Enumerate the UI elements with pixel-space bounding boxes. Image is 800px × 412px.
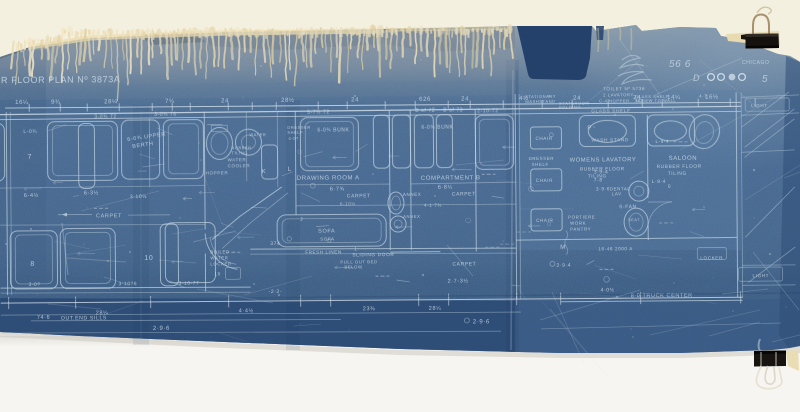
svg-text:M: M <box>560 245 566 251</box>
svg-text:2·9·6: 2·9·6 <box>473 319 490 325</box>
svg-text:PORTIERE: PORTIERE <box>568 214 595 219</box>
svg-text:374: 374 <box>270 241 280 247</box>
svg-text:24: 24 <box>461 96 469 102</box>
svg-text:LIGHT: LIGHT <box>753 273 770 278</box>
svg-text:COMPARTMENT B: COMPARTMENT B <box>421 175 481 181</box>
svg-text:WATER: WATER <box>228 157 247 162</box>
svg-text:SEAT: SEAT <box>628 218 640 222</box>
svg-text:-2·2-: -2·2- <box>269 289 283 295</box>
svg-text:24: 24 <box>351 97 359 103</box>
svg-text:2·9·6: 2·9·6 <box>153 326 170 332</box>
svg-text:16·46 2000 A: 16·46 2000 A <box>598 246 633 251</box>
svg-text:19: 19 <box>214 271 220 276</box>
svg-text:6-3½: 6-3½ <box>84 189 99 196</box>
svg-text:GLASS SHELF: GLASS SHELF <box>591 108 630 114</box>
svg-text:FOLDING: FOLDING <box>559 105 581 110</box>
svg-text:CHAIR: CHAIR <box>536 218 553 223</box>
svg-text:CARPET: CARPET <box>347 193 371 199</box>
svg-text:L: L <box>288 167 292 173</box>
svg-text:3-0?: 3-0? <box>29 282 41 288</box>
svg-text:SHELF: SHELF <box>287 130 303 135</box>
svg-text:P: P <box>587 125 592 131</box>
svg-text:3·9-4: 3·9-4 <box>594 169 609 175</box>
svg-text:K: K <box>262 169 267 175</box>
svg-text:HOPPER: HOPPER <box>206 170 229 175</box>
svg-text:CHAIR: CHAIR <box>536 178 553 183</box>
svg-text:2·7-3½: 2·7-3½ <box>448 277 469 284</box>
svg-text:CHICAGO: CHICAGO <box>742 60 770 66</box>
svg-text:J: J <box>300 217 303 223</box>
svg-text:5: 5 <box>762 74 768 85</box>
svg-text:4-0?: 4-0? <box>288 136 299 141</box>
svg-text:WOMENS LAVATORY: WOMENS LAVATORY <box>570 157 637 164</box>
svg-text:WORK: WORK <box>570 221 586 226</box>
svg-text:L-0¾: L-0¾ <box>23 129 37 135</box>
svg-text:23⅜: 23⅜ <box>363 306 376 312</box>
svg-text:CARPET: CARPET <box>452 261 476 267</box>
svg-text:WATER: WATER <box>249 132 266 137</box>
svg-text:WATER: WATER <box>210 255 228 260</box>
svg-text:2 LAVATORY: 2 LAVATORY <box>603 92 634 97</box>
svg-text:DRAWING ROOM A: DRAWING ROOM A <box>297 175 360 181</box>
svg-text:626: 626 <box>419 97 431 103</box>
svg-text:S-FAN: S-FAN <box>619 204 637 210</box>
svg-text:SCREW TO WALL: SCREW TO WALL <box>635 98 676 103</box>
svg-text:3·9·6: 3·9·6 <box>596 186 610 192</box>
svg-text:WASH STAND: WASH STAND <box>591 137 628 143</box>
svg-text:2·9·4: 2·9·4 <box>556 263 571 269</box>
svg-text:SHELF: SHELF <box>532 162 549 167</box>
svg-text:TILING: TILING <box>668 171 687 177</box>
svg-text:SLIDING DOOR: SLIDING DOOR <box>352 252 394 258</box>
svg-text:2-10-72: 2-10-72 <box>477 108 498 114</box>
svg-text:PANTRY: PANTRY <box>570 226 591 231</box>
svg-text:10: 10 <box>144 255 153 262</box>
svg-text:B of 72: B of 72 <box>415 108 435 114</box>
svg-text:DRESSER: DRESSER <box>529 156 554 161</box>
svg-text:8: 8 <box>30 261 35 268</box>
svg-text:B of 73: B of 73 <box>443 108 463 114</box>
svg-text:3-10½: 3-10½ <box>130 193 147 200</box>
svg-text:9¾: 9¾ <box>51 100 61 106</box>
svg-text:16¼: 16¼ <box>15 100 29 106</box>
svg-text:LOCKER: LOCKER <box>210 261 231 266</box>
svg-text:SOFA: SOFA <box>318 229 335 235</box>
svg-text:RUBBER FLOOR: RUBBER FLOOR <box>657 164 702 170</box>
svg-text:TOILET Nº 5736: TOILET Nº 5736 <box>603 86 645 91</box>
svg-text:6·8¼: 6·8¼ <box>438 185 453 191</box>
svg-text:7: 7 <box>28 154 33 161</box>
svg-text:SALOON: SALOON <box>669 156 698 162</box>
svg-text:7-8: 7-8 <box>594 177 603 183</box>
svg-text:WASHSTAND: WASHSTAND <box>525 99 556 104</box>
svg-text:LAV: LAV <box>612 191 622 196</box>
svg-text:4·0½: 4·0½ <box>601 286 615 293</box>
svg-text:3-10-77: 3-10-77 <box>179 281 200 287</box>
svg-text:28¼: 28¼ <box>104 99 118 105</box>
svg-text:L-9-4: L-9-4 <box>655 139 669 144</box>
svg-text:6-0¾ BUNK: 6-0¾ BUNK <box>317 127 349 133</box>
svg-text:CARPET: CARPET <box>96 213 122 219</box>
svg-text:7¼: 7¼ <box>165 99 175 105</box>
svg-text:TILING: TILING <box>232 150 249 155</box>
svg-text:R FLOOR PLAN Nº 3873A: R FLOOR PLAN Nº 3873A <box>1 74 121 85</box>
svg-text:L·9·4: L·9·4 <box>652 179 666 185</box>
svg-text:4·4½: 4·4½ <box>239 307 254 314</box>
svg-text:28½: 28½ <box>281 97 295 104</box>
svg-text:56 6: 56 6 <box>669 59 691 70</box>
svg-text:74·6: 74·6 <box>37 315 50 321</box>
svg-text:LIGHT: LIGHT <box>751 103 768 108</box>
svg-text:ANNEX: ANNEX <box>403 214 420 219</box>
svg-text:ANNEX: ANNEX <box>403 192 422 197</box>
svg-text:24: 24 <box>221 98 229 104</box>
svg-text:CARPET: CARPET <box>452 191 476 197</box>
svg-text:3-0¾ 72: 3-0¾ 72 <box>94 114 117 120</box>
svg-text:BELOW: BELOW <box>344 264 362 269</box>
svg-text:6·7¾: 6·7¾ <box>330 186 345 192</box>
svg-text:5-7½ 72: 5-7½ 72 <box>307 109 330 116</box>
svg-text:4·7: 4·7 <box>699 94 707 99</box>
svg-text:6-0¾ BUNK: 6-0¾ BUNK <box>421 125 453 131</box>
svg-text:0: 0 <box>668 184 671 190</box>
svg-text:28¼: 28¼ <box>429 306 442 312</box>
svg-text:3-0¾ 76: 3-0¾ 76 <box>154 112 177 118</box>
svg-text:6-4½: 6-4½ <box>24 192 39 199</box>
svg-text:4-1·7¾: 4-1·7¾ <box>424 203 442 208</box>
